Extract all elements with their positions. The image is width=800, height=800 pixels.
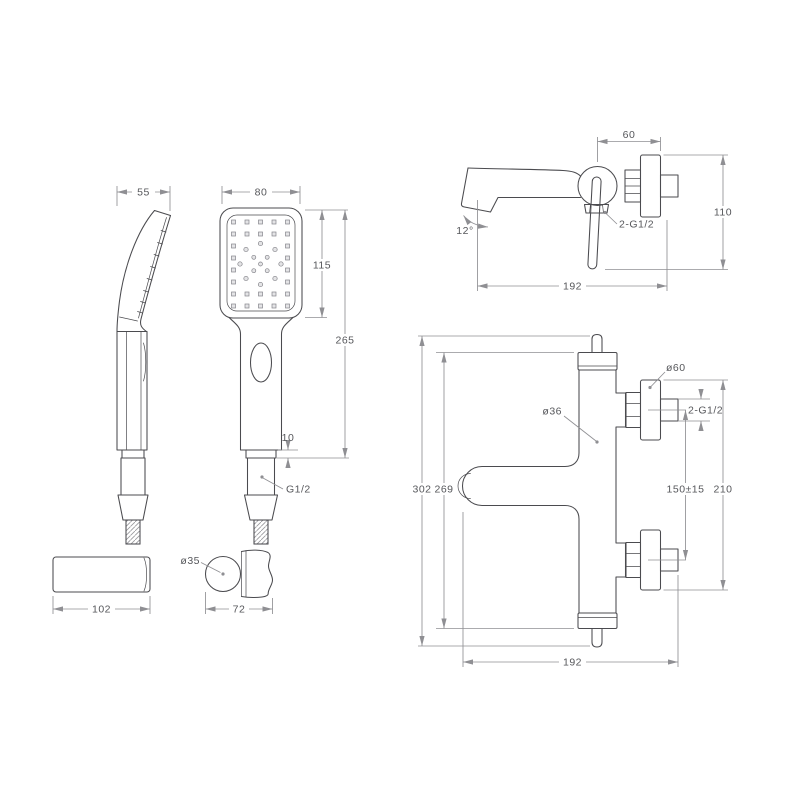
mixer-wall-connection (625, 155, 678, 217)
hand-shower-side-view: 55 (117, 186, 171, 544)
mixer-lever-handle (588, 177, 602, 269)
dim-head-width: 80 (222, 186, 300, 204)
dim-head-height: 115 (305, 210, 348, 318)
dim-label-holder-diameter: ø35 (180, 555, 200, 567)
dim-label-overall-height: 302 (412, 484, 431, 496)
dim-label-thermostat-reach: 192 (563, 657, 582, 669)
bath-mixer-side-view: 60 110 192 12° 2-G1/2 (456, 129, 735, 293)
shower-hose-front (254, 520, 268, 544)
dim-inlet-spacing: 150±15 (667, 410, 705, 560)
dim-label-spout-angle: 12° (456, 225, 473, 237)
dim-label-body-height: 269 (434, 484, 453, 496)
thermostat-body (458, 335, 626, 648)
dim-wall-offset: 60 (598, 129, 661, 162)
dim-label-collar-height: 10 (282, 432, 295, 444)
dim-label-spout-reach: 192 (563, 281, 582, 293)
dim-body-height: 269 (431, 353, 574, 629)
dim-label-inlet-spacing: 150±15 (667, 484, 705, 496)
bracket-bar-body (53, 557, 150, 592)
thermostat-lower-connection (626, 530, 686, 590)
dim-label-escutcheon-span: 210 (713, 484, 732, 496)
valve-body (578, 167, 617, 206)
dim-label-holder-depth: 72 (233, 604, 246, 616)
hand-shower-front-view: 80 115 265 10 G1/2 (220, 186, 358, 544)
dim-label-head-width: 80 (255, 187, 268, 199)
shower-holder-view: ø35 72 (180, 550, 272, 615)
label-body-diameter: ø36 (542, 406, 598, 444)
dim-label-hose-thread: G1/2 (286, 484, 311, 496)
dim-label-mixer-thread: 2-G1/2 (619, 219, 654, 231)
label-mixer-thread: 2-G1/2 (603, 211, 654, 231)
dim-spout-reach: 192 (478, 200, 668, 293)
dim-label-mixer-height: 110 (714, 207, 732, 219)
thermostatic-mixer-front-view: 302 269 ø36 ø60 2-G1/2 (409, 335, 735, 669)
dim-holder-diameter: ø35 (180, 555, 220, 573)
label-escutcheon-diameter: ø60 (648, 362, 685, 389)
technical-drawing-sheet: 55 80 115 (0, 0, 800, 800)
spray-nozzle-pattern (232, 220, 290, 308)
label-hose-thread: G1/2 (260, 475, 310, 495)
mixer-spout-body (461, 167, 617, 270)
dim-bar-length: 102 (53, 596, 150, 616)
hand-shower-side-handle (117, 332, 148, 521)
dim-label-head-height: 115 (313, 260, 331, 272)
dim-label-total-length: 265 (335, 335, 354, 347)
shower-hose-side (126, 520, 140, 544)
dim-label-escutcheon-diameter: ø60 (666, 362, 686, 374)
dim-label-thermostat-thread: 2-G1/2 (688, 405, 723, 417)
hand-shower-front-head (220, 208, 302, 318)
dim-label-head-depth: 55 (137, 187, 150, 199)
shower-set-dimension-drawing: 55 80 115 (0, 0, 800, 800)
dim-label-bar-length: 102 (92, 604, 111, 616)
hand-shower-side-head (117, 211, 171, 332)
dim-label-wall-offset: 60 (623, 129, 636, 141)
dim-spout-angle: 12° (456, 216, 488, 238)
bracket-bar-view: 102 (53, 557, 150, 616)
thermostat-upper-connection (626, 380, 686, 440)
dim-head-depth: 55 (117, 186, 170, 211)
dim-holder-depth: 72 (206, 592, 273, 616)
dim-label-body-diameter: ø36 (542, 406, 562, 418)
hand-shower-front-handle (229, 318, 293, 521)
